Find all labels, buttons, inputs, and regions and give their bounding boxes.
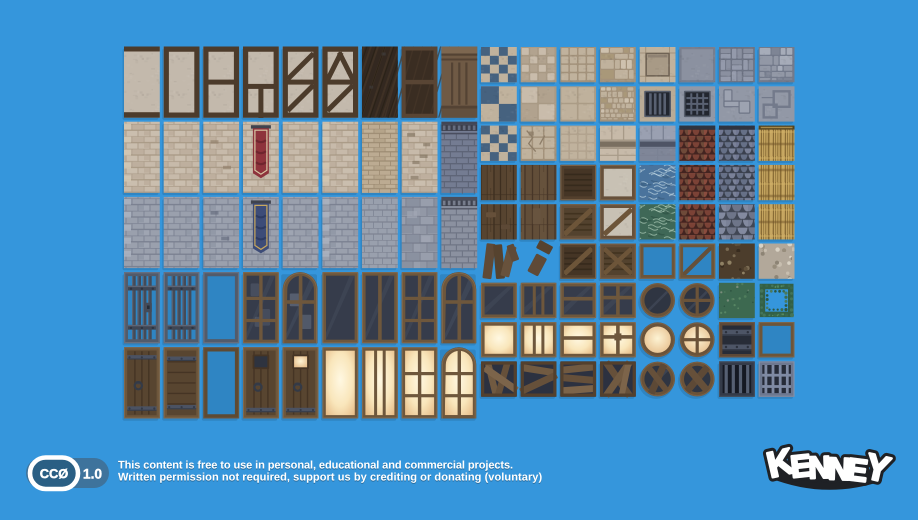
svg-text:Written permission not require: Written permission not required, support…	[118, 472, 542, 484]
svg-text:CCØ: CCØ	[40, 466, 68, 481]
svg-text:This content is free to use in: This content is free to use in personal,…	[118, 460, 513, 472]
svg-text:1.0: 1.0	[83, 467, 103, 482]
